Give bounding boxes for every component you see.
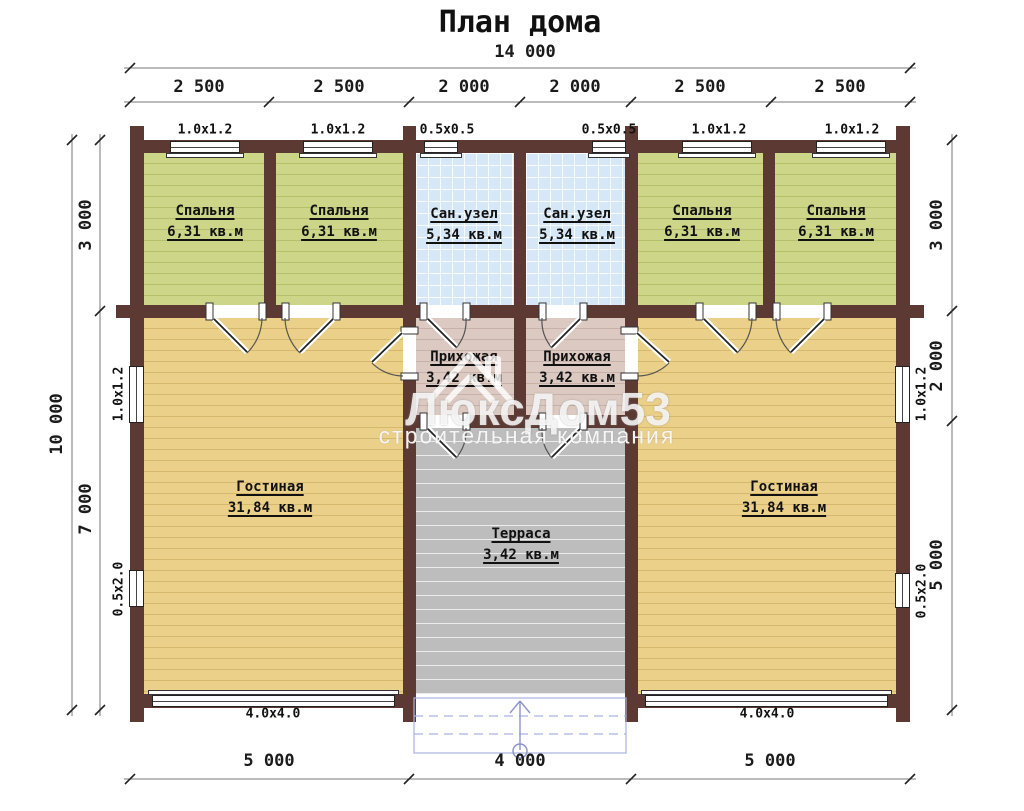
room-label: Гостиная31,84 кв.м xyxy=(742,477,826,519)
dim-label: 2 000 xyxy=(438,77,489,97)
wall-stub xyxy=(896,708,910,722)
window-bathroom-1 xyxy=(424,141,458,153)
dim-label: 3 000 xyxy=(927,199,947,250)
dim-label: 7 000 xyxy=(76,483,96,534)
window-size-label: 0.5x0.5 xyxy=(420,123,475,138)
wall-stub xyxy=(130,126,144,141)
dim-label: 5 000 xyxy=(744,751,795,771)
window-patio-left xyxy=(152,695,395,707)
window-patio-right xyxy=(645,695,888,707)
room-label: Спальня6,31 кв.м xyxy=(167,201,243,243)
window-left-lower xyxy=(129,570,144,607)
wall-right xyxy=(896,140,910,708)
room-label: Сан.узел5,34 кв.м xyxy=(539,204,615,246)
room-label: Терраса3,42 кв.м xyxy=(483,524,559,566)
room-label: Гостиная31,84 кв.м xyxy=(228,477,312,519)
window-right-upper xyxy=(895,366,910,423)
wall-stub xyxy=(130,708,144,722)
dim-label: 4 000 xyxy=(494,751,545,771)
room-label: Сан.узел5,34 кв.м xyxy=(426,204,502,246)
window-bedroom-1 xyxy=(170,141,240,153)
dim-total-height: 10 000 xyxy=(47,393,67,454)
dim-label: 2 500 xyxy=(313,77,364,97)
wall-stub xyxy=(116,305,130,318)
wall-stub xyxy=(625,708,638,722)
window-size-label: 1.0x1.2 xyxy=(112,367,127,422)
dim-label: 5 000 xyxy=(927,539,947,590)
dim-label: 2 500 xyxy=(814,77,865,97)
wall-stub xyxy=(896,126,910,141)
window-sill xyxy=(420,153,462,158)
window-bedroom-4 xyxy=(816,141,886,153)
dim-label: 3 000 xyxy=(76,199,96,250)
window-size-label: 1.0x1.2 xyxy=(825,123,880,138)
window-sill xyxy=(812,153,890,158)
window-size-label: 1.0x1.2 xyxy=(178,123,233,138)
dim-label: 2 000 xyxy=(927,340,947,391)
window-bedroom-2 xyxy=(303,141,373,153)
dim-total-width: 14 000 xyxy=(494,42,555,62)
wall-stub xyxy=(403,708,416,722)
window-left-upper xyxy=(129,366,144,423)
page-title: План дома xyxy=(439,5,602,40)
wall-left xyxy=(130,140,144,708)
window-sill xyxy=(678,153,756,158)
window-size-label: 4.0x4.0 xyxy=(740,707,795,722)
window-bathroom-2 xyxy=(592,141,626,153)
wall-stub xyxy=(403,126,416,141)
wall-bed1-bed2 xyxy=(264,140,276,318)
window-right-lower xyxy=(895,573,910,608)
window-size-label: 0.5x0.5 xyxy=(582,123,637,138)
window-sill xyxy=(299,153,377,158)
dim-label: 2 500 xyxy=(173,77,224,97)
window-size-label: 1.0x1.2 xyxy=(311,123,366,138)
dim-label: 2 000 xyxy=(549,77,600,97)
wall-stub xyxy=(910,305,924,318)
wall-bed3-bed4 xyxy=(763,140,775,318)
window-sill xyxy=(148,690,399,695)
watermark-tagline: строительная компания xyxy=(379,423,676,450)
dim-label: 2 500 xyxy=(674,77,725,97)
window-size-label: 4.0x4.0 xyxy=(246,707,301,722)
dim-label: 5 000 xyxy=(243,751,294,771)
window-size-label: 1.0x1.2 xyxy=(692,123,747,138)
window-sill xyxy=(641,690,892,695)
room-label: Спальня6,31 кв.м xyxy=(301,201,377,243)
window-bedroom-3 xyxy=(682,141,752,153)
terrace-steps xyxy=(414,698,626,753)
window-sill xyxy=(588,153,630,158)
window-size-label: 0.5x2.0 xyxy=(112,562,127,617)
room-label: Спальня6,31 кв.м xyxy=(664,201,740,243)
entry-arrow xyxy=(510,701,530,758)
floor-plan-drawing: План дома xyxy=(0,0,1024,811)
window-sill xyxy=(166,153,244,158)
room-label: Спальня6,31 кв.м xyxy=(798,201,874,243)
